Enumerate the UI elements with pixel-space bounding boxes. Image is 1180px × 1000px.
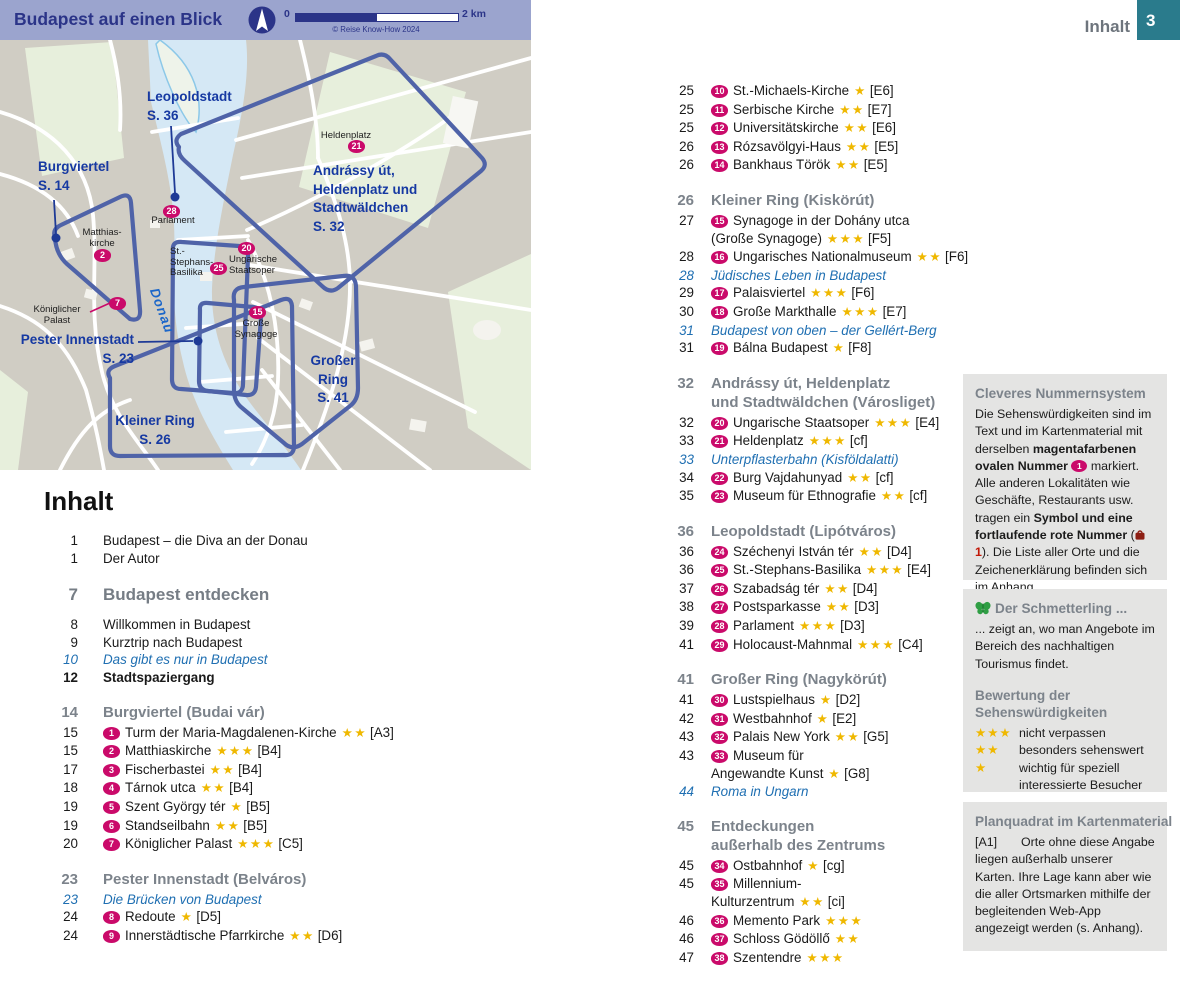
toc-entry-text: Königlicher Palast [125, 836, 232, 851]
star-rating: ★★★ [975, 725, 1019, 743]
grid-reference: [G5] [863, 729, 888, 744]
district-label-grosser-ring: Großer Ring S. 41 [299, 352, 367, 408]
poi-badge: 29 [711, 639, 728, 652]
toc-page-number: 32 [673, 374, 694, 393]
toc-row-body: 36Memento Park★★★ [711, 912, 973, 931]
star-rating: ★★ [826, 600, 851, 614]
toc-entry-line2: Kulturzentrum★★[ci] [711, 893, 973, 912]
district-page-ref: S. 32 [313, 218, 417, 237]
star-rating: ★★ [215, 819, 240, 833]
district-name: Burgviertel [38, 158, 109, 177]
poi-name: St.- [170, 247, 213, 258]
poi-badge: 21 [348, 140, 365, 153]
toc-row: 33Unterpflasterbahn (Kisföldalatti) [673, 451, 973, 469]
grid-reference: [F6] [945, 249, 968, 264]
toc-page-number: 10 [44, 651, 78, 669]
toc-row: 44Roma in Ungarn [673, 783, 973, 801]
grid-reference: [E5] [874, 139, 898, 154]
toc-row: 10Das gibt es nur in Budapest [44, 651, 484, 669]
toc-entry-line: 3Fischerbastei★★[B4] [103, 761, 484, 780]
poi-name: kirche [70, 239, 134, 250]
poi-badge: 4 [103, 782, 120, 795]
toc-row: 3422Burg Vajdahunyad★★[cf] [673, 469, 973, 488]
toc-row: 2614Bankhaus Török★★[E5] [673, 156, 973, 175]
star-rating: ★★★ [809, 434, 847, 448]
toc-entry-text: Palaisviertel [733, 285, 805, 300]
toc-row-body: 12Universitätskirche★★[E6] [711, 119, 973, 138]
toc-entry-line: 13Rózsavölgyi-Haus★★[E5] [711, 138, 973, 157]
toc-row: 23Pester Innenstadt (Belváros) [44, 870, 484, 889]
toc-page-number: 20 [44, 835, 78, 853]
toc-row: 31Budapest von oben – der Gellért-Berg [673, 322, 973, 340]
toc-row-body: 31Westbahnhof★[E2] [711, 710, 973, 729]
butterfly-box-title: Der Schmetterling ... [975, 600, 1155, 617]
toc-entry-text: Redoute [125, 909, 176, 924]
toc-entry-text: Fischerbastei [125, 762, 205, 777]
poi-badge: 21 [711, 435, 728, 448]
poi-badge: 22 [711, 472, 728, 485]
toc-row-body: 37Schloss Gödöllő★★ [711, 930, 973, 949]
poi-label-basilika: St.- Stephans- Basilika [170, 247, 213, 279]
toc-row: 184Tárnok utca★★[B4] [44, 779, 484, 798]
page-header-label: Inhalt [1085, 17, 1130, 37]
map-copyright: © Reise Know-How 2024 [290, 25, 462, 34]
toc-row: 12Stadtspaziergang [44, 669, 484, 687]
toc-row: 1Budapest – die Diva an der Donau [44, 532, 484, 550]
toc-entry-line: 35Millennium- [711, 875, 973, 893]
toc-section-line: außerhalb des Zentrums [711, 836, 973, 855]
poi-badge: 7 [103, 838, 120, 851]
toc-row-body: Andrássy út, Heldenplatzund Stadtwäldche… [711, 374, 973, 412]
toc-row: 4332Palais New York★★[G5] [673, 728, 973, 747]
rating-row: ★★besonders sehenswert [975, 742, 1155, 760]
page-number: 3 [1146, 11, 1155, 31]
toc-entry-line: 20Ungarische Staatsoper★★★[E4] [711, 414, 973, 433]
poi-label-grosse-synagoge: Große Synagoge [227, 319, 285, 340]
toc-section-line: Budapest entdecken [103, 584, 484, 605]
star-rating: ★★★ [810, 286, 848, 300]
poi-badge: 25 [711, 564, 728, 577]
district-label-pester-innenstadt: Pester Innenstadt S. 23 [0, 331, 134, 368]
district-name: Ring [299, 371, 367, 390]
toc-section-line: Leopoldstadt (Lipótváros) [711, 522, 973, 541]
star-rating: ★★★ [825, 914, 863, 928]
toc-page-number: 41 [673, 636, 694, 654]
toc-section-line: Kleiner Ring (Kiskörút) [711, 191, 973, 210]
info-box-numbering: Cleveres Nummernsystem Die Sehenswürdigk… [963, 374, 1167, 580]
toc-page-number: 27 [673, 212, 694, 230]
toc-page-number: 44 [673, 783, 694, 801]
butterfly-icon [975, 601, 991, 615]
poi-badge: 1 [1071, 460, 1087, 472]
poi-name: Heldenplatz [300, 131, 392, 142]
star-rating: ★★★ [827, 232, 865, 246]
poi-badge: 3 [103, 764, 120, 777]
toc-entry-line2: Angewandte Kunst★[G8] [711, 765, 973, 784]
district-page-ref: S. 26 [100, 431, 210, 450]
toc-entry-line: 27Postsparkasse★★[D3] [711, 598, 973, 617]
toc-row-body: Entdeckungenaußerhalb des Zentrums [711, 817, 973, 855]
toc-row-body: Burgviertel (Budai vár) [103, 703, 484, 722]
poi-badge: 28 [163, 205, 180, 218]
poi-badge: 6 [103, 820, 120, 833]
toc-row: 23Die Brücken von Budapest [44, 891, 484, 909]
toc-page-number: 25 [673, 119, 694, 137]
toc-row-body: 6Standseilbahn★★[B5] [103, 817, 484, 836]
toc-page-number: 26 [673, 138, 694, 156]
toc-row-body: 19Bálna Budapest★[F8] [711, 339, 973, 358]
poi-badge: 10 [711, 85, 728, 98]
poi-badge: 27 [711, 601, 728, 614]
scale-bar [295, 13, 459, 22]
star-rating: ★★ [201, 781, 226, 795]
scale-bar-filled [296, 14, 377, 21]
poi-badge: 2 [103, 745, 120, 758]
grid-reference: [E4] [915, 415, 939, 430]
toc-row: 151Turm der Maria-Magdalenen-Kirche★★[A3… [44, 724, 484, 743]
toc-entry-line: 6Standseilbahn★★[B5] [103, 817, 484, 836]
grid-reference: [E4] [907, 562, 931, 577]
district-page-ref: S. 36 [147, 107, 232, 126]
toc-section-line: Entdeckungen [711, 817, 973, 836]
toc-entry-line: 2Matthiaskirche★★★[B4] [103, 742, 484, 761]
poi-badge: 31 [711, 713, 728, 726]
toc-row: 4534Ostbahnhof★[cg] [673, 857, 973, 876]
toc-page-number: 33 [673, 432, 694, 450]
toc-entry-text: Schloss Gödöllő [733, 931, 830, 946]
poi-badge: 28 [711, 620, 728, 633]
poi-badge: 24 [711, 546, 728, 559]
toc-entry-line: 12Universitätskirche★★[E6] [711, 119, 973, 138]
toc-row-body: Der Autor [103, 550, 484, 568]
toc-title: Inhalt [44, 486, 113, 517]
grid-reference: [ci] [828, 894, 845, 909]
poi-badge: 38 [711, 952, 728, 965]
toc-page-number: 7 [44, 584, 78, 605]
toc-row-body: 18Große Markthalle★★★[E7] [711, 303, 973, 322]
toc-page-number: 14 [44, 703, 78, 722]
toc-row: 14Burgviertel (Budai vár) [44, 703, 484, 722]
info-box-text-segment: ( [1127, 528, 1135, 542]
toc-row: 2512Universitätskirche★★[E6] [673, 119, 973, 138]
toc-entry-line: 21Heldenplatz★★★[cf] [711, 432, 973, 451]
poi-badge: 35 [711, 878, 728, 891]
toc-row: 2715Synagoge in der Dohány utca(Große Sy… [673, 212, 973, 248]
toc-page-number: 37 [673, 580, 694, 598]
district-page-ref: S. 14 [38, 177, 109, 196]
toc-entry-line: 37Schloss Gödöllő★★ [711, 930, 973, 949]
toc-page-number: 33 [673, 451, 694, 469]
toc-page-number: 1 [44, 550, 78, 568]
toc-entry-text: Museum für [733, 748, 804, 763]
star-rating: ★★ [835, 730, 860, 744]
toc-row-body: 35Millennium-Kulturzentrum★★[ci] [711, 875, 973, 911]
toc-page-number: 36 [673, 561, 694, 579]
grid-reference: [cf] [876, 470, 894, 485]
toc-entry-text: St.-Stephans-Basilika [733, 562, 861, 577]
star-rating: ★★ [342, 726, 367, 740]
grid-reference: [A1] [975, 834, 1021, 851]
toc-row-body: 20Ungarische Staatsoper★★★[E4] [711, 414, 973, 433]
toc-row-body: Budapest von oben – der Gellért-Berg [711, 322, 973, 340]
toc-row: 3321Heldenplatz★★★[cf] [673, 432, 973, 451]
toc-row-body: 13Rózsavölgyi-Haus★★[E5] [711, 138, 973, 157]
info-box-title: Cleveres Nummernsystem [975, 385, 1155, 402]
district-page-ref: S. 23 [0, 350, 134, 369]
grid-reference: [cg] [823, 858, 845, 873]
toc-page-number: 19 [44, 817, 78, 835]
star-rating: ★★ [917, 250, 942, 264]
toc-entry-text: (Große Synagoge) [711, 231, 822, 246]
butterfly-title-text: Der Schmetterling ... [995, 601, 1127, 616]
toc-entry-line: 38Szentendre★★★ [711, 949, 973, 968]
star-rating: ★ [181, 910, 194, 924]
toc-entry-text: Lustspielhaus [733, 692, 815, 707]
toc-row-body: 24Széchenyi István tér★★[D4] [711, 543, 973, 562]
district-name: Andrássy út, [313, 162, 417, 181]
rating-legend: ★★★nicht verpassen★★besonders sehenswert… [975, 725, 1155, 795]
info-box-text-segment: 1 [975, 545, 982, 559]
star-rating: ★ [230, 800, 243, 814]
toc-page-number: 8 [44, 616, 78, 634]
poi-badge: 32 [711, 731, 728, 744]
toc-row: 4231Westbahnhof★[E2] [673, 710, 973, 729]
grid-reference: [B5] [243, 818, 267, 833]
toc-row: 2510St.-Michaels-Kirche★[E6] [673, 82, 973, 101]
poi-name: Königlicher [22, 305, 92, 316]
toc-section-line: und Stadtwäldchen (Városliget) [711, 393, 973, 412]
poi-badge: 13 [711, 141, 728, 154]
toc-row: 2511Serbische Kirche★★[E7] [673, 101, 973, 120]
toc-row-body: Großer Ring (Nagykörút) [711, 670, 973, 689]
grid-reference: [E7] [868, 102, 892, 117]
toc-row-body: Roma in Ungarn [711, 783, 973, 801]
toc-entry-line: 25St.-Stephans-Basilika★★★[E4] [711, 561, 973, 580]
poi-badge: 5 [103, 801, 120, 814]
toc-row: 3928Parlament★★★[D3] [673, 617, 973, 636]
toc-right-column: 2510St.-Michaels-Kirche★[E6]2511Serbisch… [673, 82, 973, 967]
toc-row-body: 2Matthiaskirche★★★[B4] [103, 742, 484, 761]
toc-entry-text: Széchenyi István tér [733, 544, 854, 559]
toc-entry-text: Kulturzentrum [711, 894, 794, 909]
grid-reference: [F8] [848, 340, 871, 355]
toc-row: 2613Rózsavölgyi-Haus★★[E5] [673, 138, 973, 157]
grid-reference: [B4] [229, 780, 253, 795]
toc-page-number: 46 [673, 912, 694, 930]
toc-row: 7Budapest entdecken [44, 584, 484, 605]
toc-page-number: 15 [44, 742, 78, 760]
toc-row-body: 26Szabadság tér★★[D4] [711, 580, 973, 599]
star-rating: ★ [833, 341, 846, 355]
toc-row: 26Kleiner Ring (Kiskörút) [673, 191, 973, 210]
toc-row: 4535Millennium-Kulturzentrum★★[ci] [673, 875, 973, 911]
district-label-kleiner-ring: Kleiner Ring S. 26 [100, 412, 210, 449]
grid-reference: [F6] [851, 285, 874, 300]
toc-entry-text: Postsparkasse [733, 599, 821, 614]
toc-entry-text: Holocaust-Mahnmal [733, 637, 852, 652]
toc-row-body: 11Serbische Kirche★★[E7] [711, 101, 973, 120]
star-rating: ★★ [835, 932, 860, 946]
toc-entry-text: Jüdisches Leben in Budapest [711, 268, 886, 283]
toc-entry-text: Große Markthalle [733, 304, 836, 319]
rating-row: ★wichtig für speziell interessierte Besu… [975, 760, 1155, 795]
toc-row: 41Großer Ring (Nagykörút) [673, 670, 973, 689]
toc-entry-line: 15Synagoge in der Dohány utca [711, 212, 973, 230]
toc-page-number: 45 [673, 817, 694, 836]
toc-row-body: Das gibt es nur in Budapest [103, 651, 484, 669]
compass-icon [247, 5, 277, 35]
toc-page-number: 38 [673, 598, 694, 616]
toc-entry-text: Millennium- [733, 876, 801, 891]
district-name: Leopoldstadt [147, 88, 232, 107]
toc-entry-line: 22Burg Vajdahunyad★★[cf] [711, 469, 973, 488]
toc-row: 4333Museum fürAngewandte Kunst★[G8] [673, 747, 973, 783]
toc-page-number: 23 [44, 891, 78, 909]
toc-row: 4130Lustspielhaus★[D2] [673, 691, 973, 710]
toc-row-body: 10St.-Michaels-Kirche★[E6] [711, 82, 973, 101]
toc-page-number: 26 [673, 191, 694, 210]
poi-badge: 34 [711, 860, 728, 873]
map-title: Budapest auf einen Blick [14, 9, 222, 30]
grid-reference: [B5] [246, 799, 270, 814]
toc-row-body: 5Szent György tér★[B5] [103, 798, 484, 817]
toc-row-body: 21Heldenplatz★★★[cf] [711, 432, 973, 451]
toc-entry-text: Synagoge in der Dohány utca [733, 213, 909, 228]
star-rating: ★★ [824, 582, 849, 596]
toc-entry-text: Heldenplatz [733, 433, 804, 448]
toc-row: 3220Ungarische Staatsoper★★★[E4] [673, 414, 973, 433]
poi-badge: 18 [711, 306, 728, 319]
toc-entry-text: Matthiaskirche [125, 743, 211, 758]
toc-entry-text: Das gibt es nur in Budapest [103, 652, 268, 667]
district-name: Großer [299, 352, 367, 371]
toc-row: 249Innerstädtische Pfarrkirche★★[D6] [44, 927, 484, 946]
poi-badge: 25 [210, 262, 227, 275]
toc-entry-text: Ungarische Staatsoper [733, 415, 869, 430]
page-number-tab: 3 [1137, 0, 1180, 40]
grid-reference: [cf] [909, 488, 927, 503]
overview-map: Budapest auf einen Blick 0 2 km © Reise … [0, 0, 531, 470]
info-box-text-segment: ). Die Liste aller Orte und die Zeichene… [975, 545, 1147, 594]
grid-reference: [F5] [868, 231, 891, 246]
toc-row-body: 15Synagoge in der Dohány utca(Große Syna… [711, 212, 973, 248]
toc-row-body: 29Holocaust-Mahnmal★★★[C4] [711, 636, 973, 655]
poi-name: Basilika [170, 268, 213, 279]
toc-left-column: 1Budapest – die Diva an der Donau1Der Au… [44, 532, 484, 946]
toc-row-body: 16Ungarisches Nationalmuseum★★[F6] [711, 248, 973, 267]
toc-row: 3726Szabadság tér★★[D4] [673, 580, 973, 599]
star-rating: ★★★ [216, 744, 254, 758]
toc-row-body: 14Bankhaus Török★★[E5] [711, 156, 973, 175]
toc-row-body: 3Fischerbastei★★[B4] [103, 761, 484, 780]
poi-name: Staatsoper [229, 266, 277, 277]
toc-entry-text: Kurztrip nach Budapest [103, 635, 242, 650]
toc-row-body: Kleiner Ring (Kiskörút) [711, 191, 973, 210]
scale-start-label: 0 [284, 8, 290, 20]
toc-page-number: 42 [673, 710, 694, 728]
toc-page-number: 34 [673, 469, 694, 487]
grid-reference: [D4] [853, 581, 878, 596]
district-label-burgviertel: Burgviertel S. 14 [38, 158, 109, 195]
toc-page-number: 35 [673, 487, 694, 505]
star-rating: ★★ [844, 121, 869, 135]
toc-page-number: 43 [673, 747, 694, 765]
poi-badge: 1 [103, 727, 120, 740]
star-rating: ★★ [859, 545, 884, 559]
toc-row-body: Budapest – die Diva an der Donau [103, 532, 484, 550]
toc-page-number: 32 [673, 414, 694, 432]
toc-entry-text: Palais New York [733, 729, 830, 744]
toc-entry-text: Standseilbahn [125, 818, 210, 833]
district-name: Stadtwäldchen [313, 199, 417, 218]
star-rating: ★★ [846, 140, 871, 154]
toc-row-body: Stadtspaziergang [103, 669, 484, 687]
rating-row: ★★★nicht verpassen [975, 725, 1155, 743]
toc-entry-text: Ostbahnhof [733, 858, 802, 873]
toc-row: 152Matthiaskirche★★★[B4] [44, 742, 484, 761]
toc-row: 3119Bálna Budapest★[F8] [673, 339, 973, 358]
star-rating: ★★ [799, 895, 824, 909]
toc-page-number: 47 [673, 949, 694, 967]
poi-badge: 2 [94, 249, 111, 262]
toc-row: 3625St.-Stephans-Basilika★★★[E4] [673, 561, 973, 580]
toc-row-body: Budapest entdecken [103, 584, 484, 605]
star-rating: ★ [854, 84, 867, 98]
toc-entry-line: 17Palaisviertel★★★[F6] [711, 284, 973, 303]
toc-row: 4738Szentendre★★★ [673, 949, 973, 968]
poi-name: Synagoge [227, 330, 285, 341]
toc-page-number: 23 [44, 870, 78, 889]
toc-row: 36Leopoldstadt (Lipótváros) [673, 522, 973, 541]
toc-page-number: 25 [673, 101, 694, 119]
star-rating: ★ [828, 767, 841, 781]
toc-row-body: 32Palais New York★★[G5] [711, 728, 973, 747]
district-page-ref: S. 41 [299, 389, 367, 408]
toc-page-number: 28 [673, 267, 694, 285]
toc-entry-line: 19Bálna Budapest★[F8] [711, 339, 973, 358]
poi-badge: 20 [711, 417, 728, 430]
toc-row-body: 28Parlament★★★[D3] [711, 617, 973, 636]
toc-entry-line: 18Große Markthalle★★★[E7] [711, 303, 973, 322]
poi-badge: 19 [711, 342, 728, 355]
toc-page-number: 26 [673, 156, 694, 174]
toc-page-number: 19 [44, 798, 78, 816]
star-rating: ★★ [881, 489, 906, 503]
toc-entry-text: Budapest von oben – der Gellért-Berg [711, 323, 937, 338]
star-rating: ★ [817, 712, 830, 726]
toc-row-body: 27Postsparkasse★★[D3] [711, 598, 973, 617]
poi-badge: 9 [103, 930, 120, 943]
grid-reference: [D2] [836, 692, 861, 707]
toc-entry-text: Serbische Kirche [733, 102, 834, 117]
poi-badge: 15 [711, 215, 728, 228]
toc-entry-line: 30Lustspielhaus★[D2] [711, 691, 973, 710]
toc-entry-text: Budapest – die Diva an der Donau [103, 533, 308, 548]
toc-page-number: 41 [673, 691, 694, 709]
star-rating: ★ [975, 760, 1019, 795]
toc-row: 45Entdeckungenaußerhalb des Zentrums [673, 817, 973, 855]
grid-reference: [E7] [883, 304, 907, 319]
poi-badge: 15 [249, 306, 266, 319]
grid-reference: [C4] [898, 637, 923, 652]
poi-label-koeniglicher-palast: Königlicher Palast [22, 305, 92, 326]
toc-entry-line: 31Westbahnhof★[E2] [711, 710, 973, 729]
toc-page-number: 28 [673, 248, 694, 266]
toc-entry-text: Bankhaus Török [733, 157, 830, 172]
star-rating: ★★★ [237, 837, 275, 851]
toc-row: 3827Postsparkasse★★[D3] [673, 598, 973, 617]
toc-entry-line: 36Memento Park★★★ [711, 912, 973, 931]
